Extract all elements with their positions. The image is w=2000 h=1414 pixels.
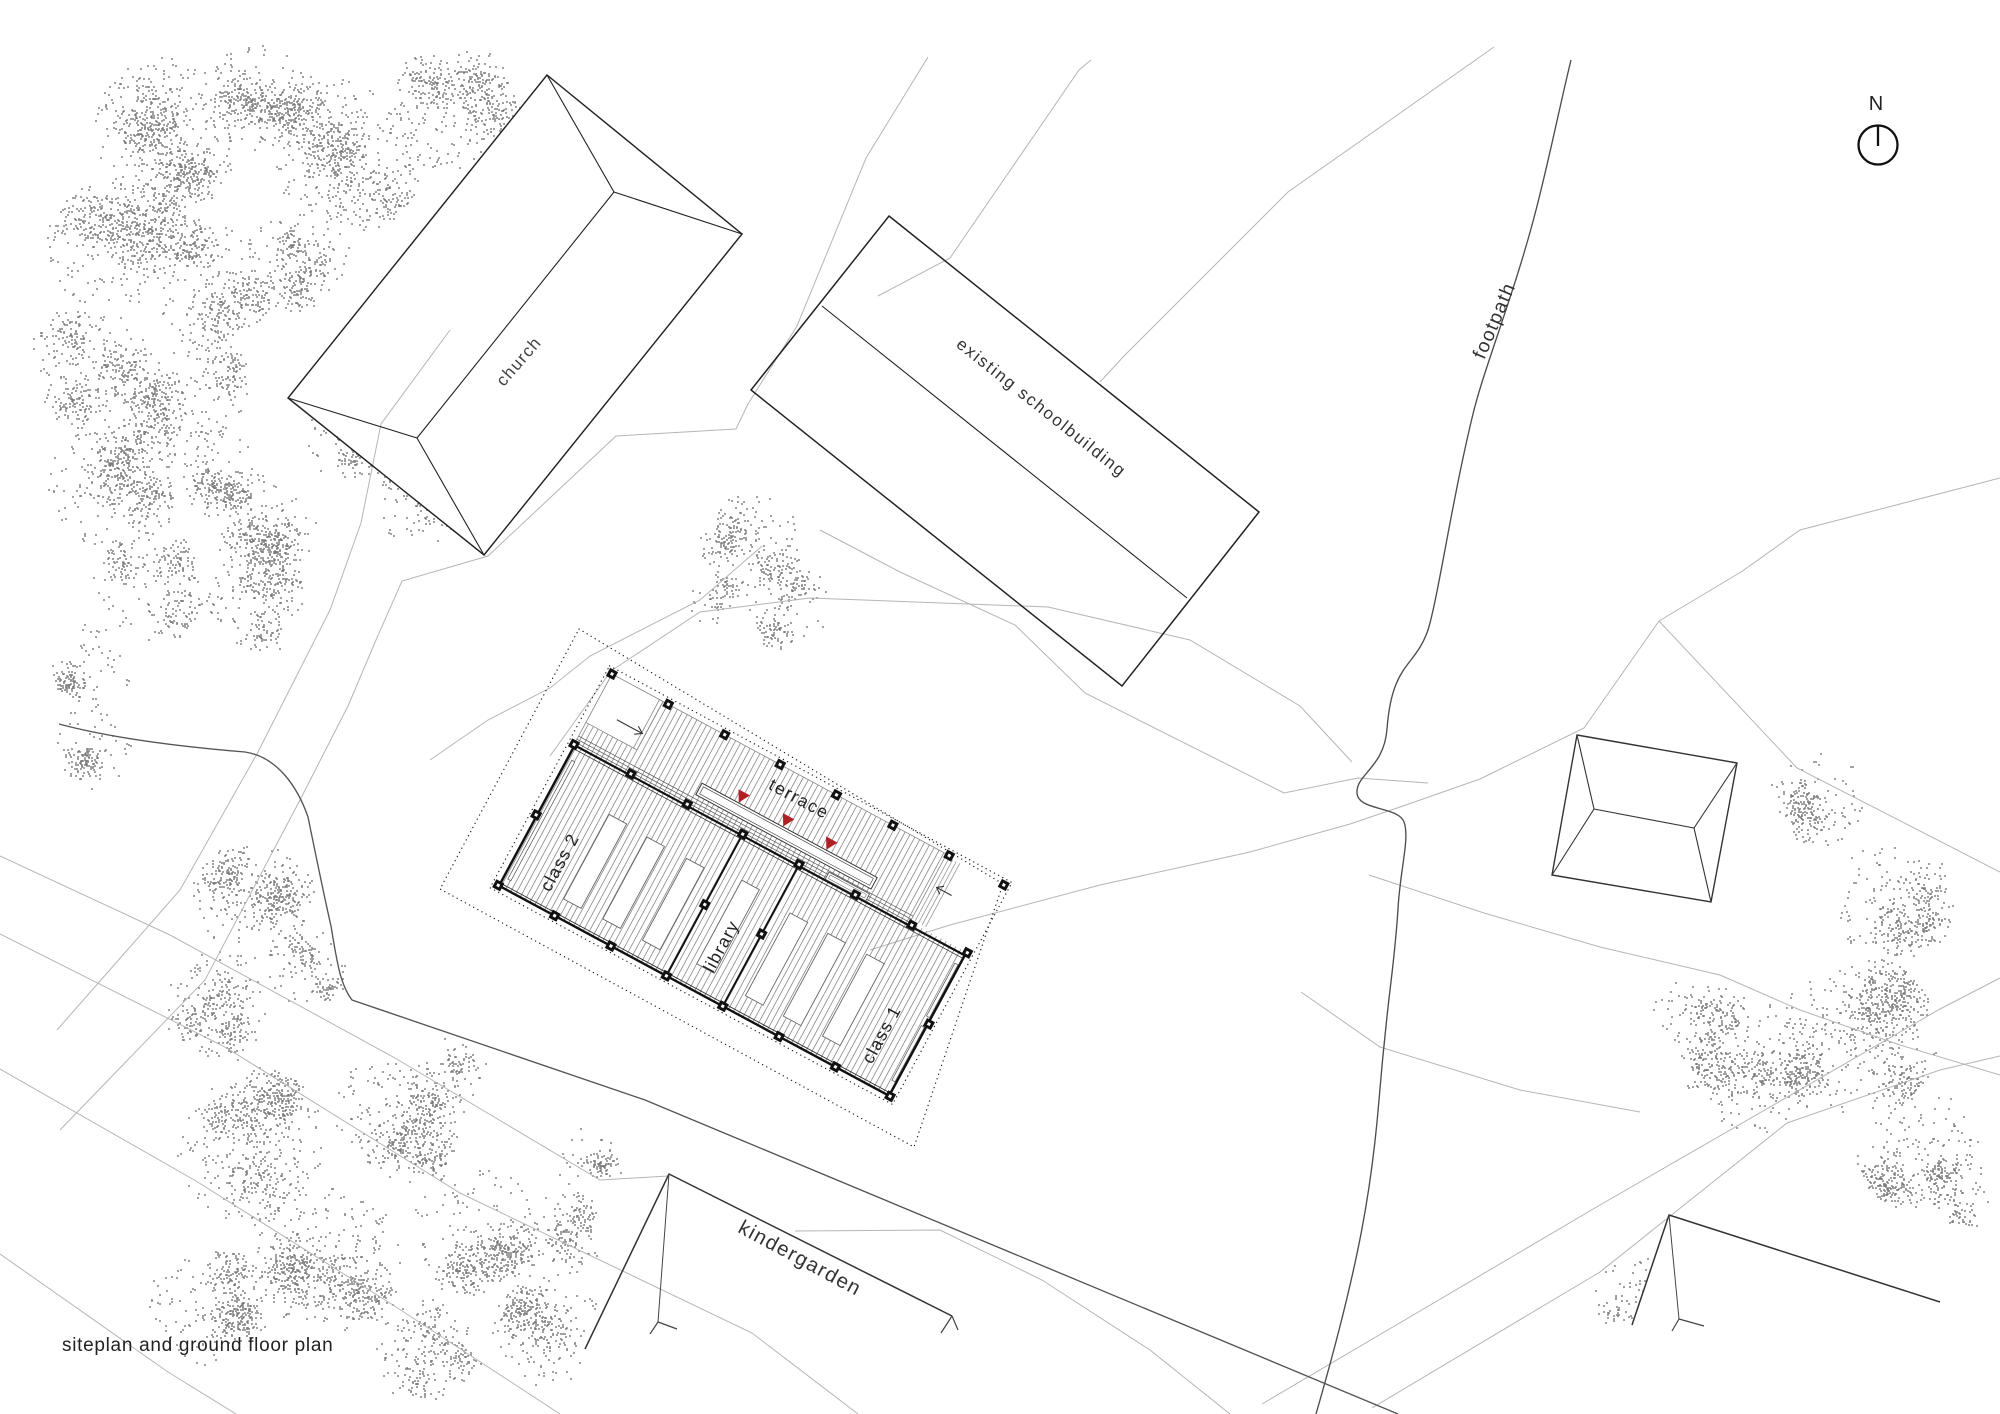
svg-text:siteplan and ground floor plan: siteplan and ground floor plan <box>62 1335 333 1356</box>
svg-text:N: N <box>1869 93 1883 115</box>
